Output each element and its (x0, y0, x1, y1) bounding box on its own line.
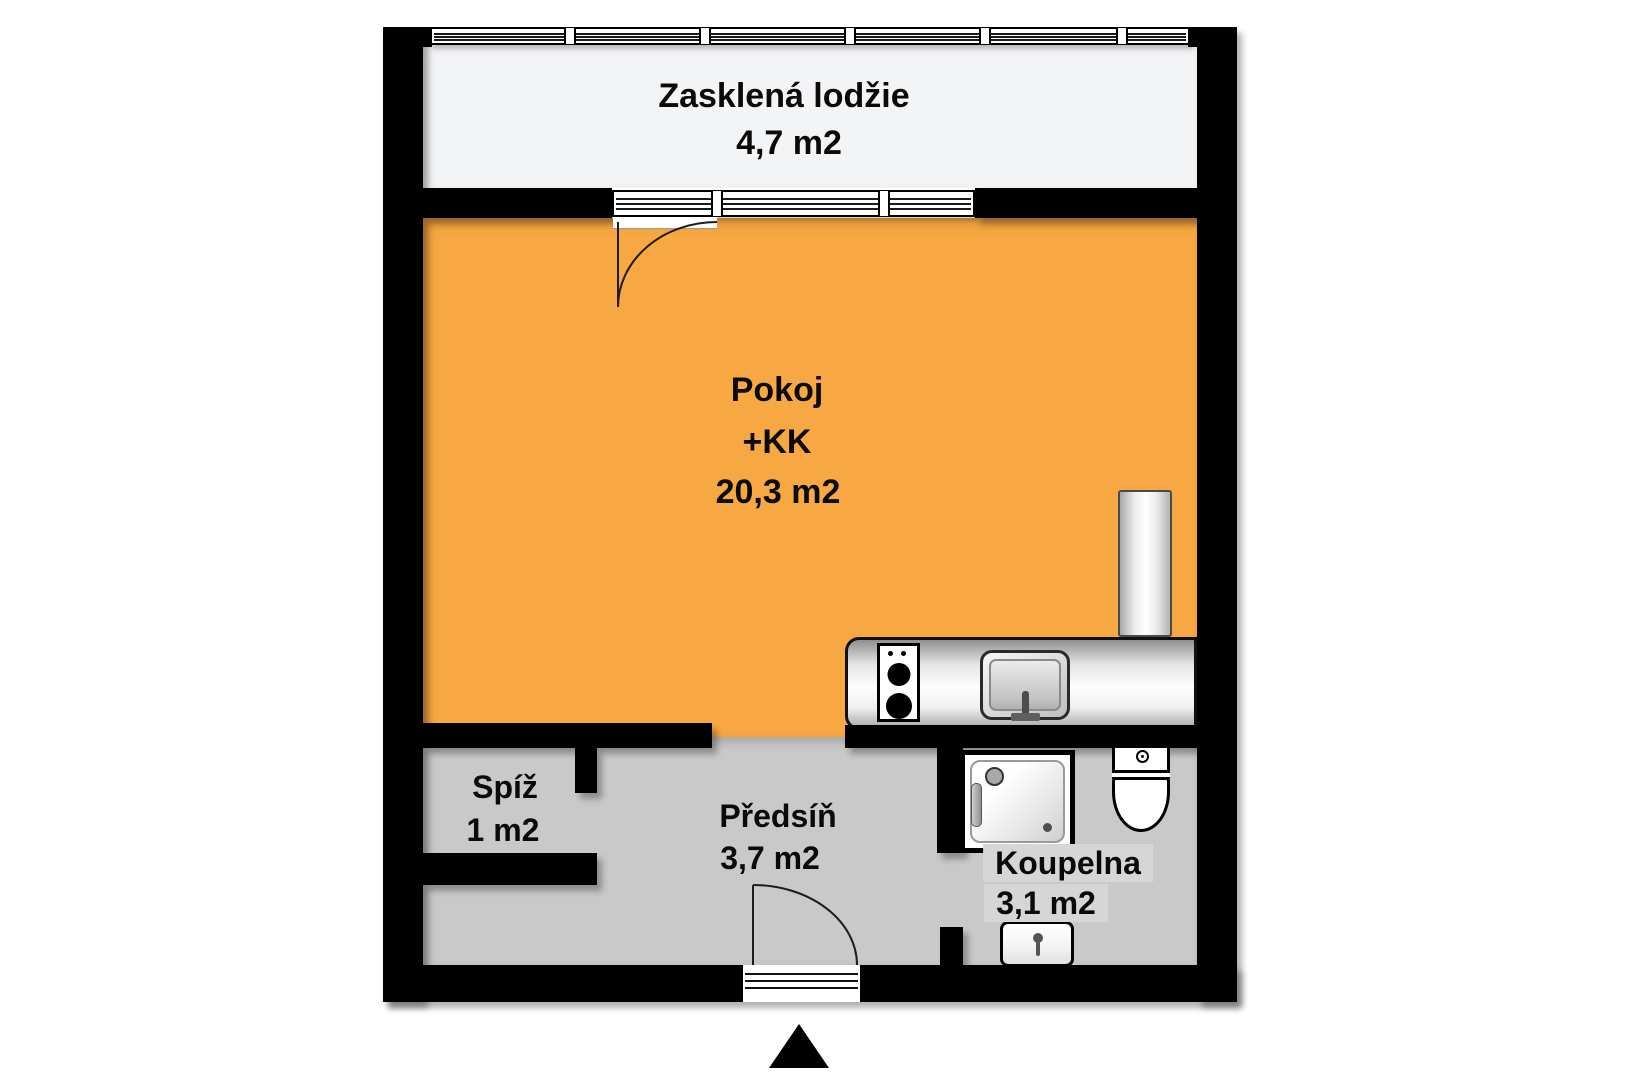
bathroom-area-label: 3,1 m2 (984, 884, 1108, 922)
pokoj-name-label: Pokoj (731, 373, 824, 407)
pantry-area-label: 1 m2 (467, 814, 540, 846)
wall-bathroom-stub (940, 927, 963, 967)
balcony-door-threshold (613, 217, 717, 229)
pokoj-area-label: 20,3 m2 (716, 475, 841, 509)
shower-icon (960, 750, 1075, 853)
toilet-flush-button-icon (1136, 750, 1149, 763)
stove-icon (877, 643, 920, 722)
pokoj-kk-label: +KK (743, 425, 812, 459)
floorplan-canvas: Zasklená lodžie 4,7 m2 Pokoj +KK 20,3 m2… (0, 0, 1635, 1080)
kitchen-sink-icon (980, 650, 1070, 720)
wall-left (383, 27, 423, 1002)
wall-pantry-bottom (423, 853, 597, 885)
entrance-arrow-icon (769, 1024, 829, 1068)
hallway-name-label: Předsíň (719, 800, 836, 832)
wall-pantry-top (423, 723, 712, 748)
wall-loggia-divider-right (975, 188, 1197, 218)
loggia-name-label: Zasklená lodžie (658, 79, 909, 113)
entrance-door-sill (743, 965, 860, 1002)
wall-pantry-right (575, 748, 597, 793)
pantry-name-label: Spíž (472, 771, 538, 803)
loggia-window-band-icon (430, 27, 1190, 45)
wall-corner-top-right (1188, 27, 1237, 47)
wall-loggia-divider-left (423, 188, 612, 218)
hallway-area-label: 3,7 m2 (720, 842, 820, 874)
wall-right (1197, 27, 1237, 1002)
wall-corner-top-left (383, 27, 432, 47)
balcony-window-band-icon (612, 190, 975, 217)
loggia-floor (423, 45, 1197, 188)
washbasin-icon (1000, 921, 1074, 967)
loggia-area-label: 4,7 m2 (736, 126, 842, 160)
tall-cabinet-fridge-icon (1118, 490, 1172, 637)
bathroom-name-label: Koupelna (983, 844, 1153, 882)
